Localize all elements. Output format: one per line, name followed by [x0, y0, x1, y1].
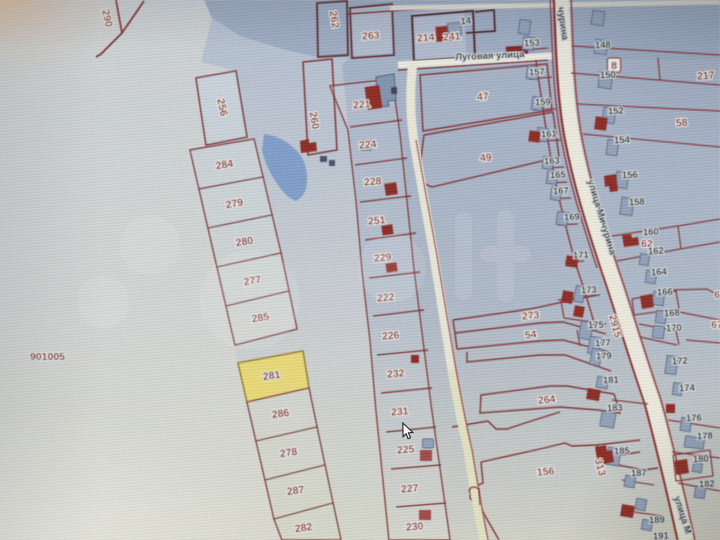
svg-text:180: 180 [693, 454, 709, 466]
svg-text:224: 224 [358, 138, 377, 151]
svg-text:162: 162 [648, 246, 664, 258]
svg-text:160: 160 [643, 227, 659, 239]
svg-text:228: 228 [363, 175, 382, 188]
svg-text:154: 154 [614, 135, 631, 147]
svg-text:281: 281 [262, 369, 281, 383]
svg-text:263: 263 [362, 29, 380, 42]
svg-text:172: 172 [672, 356, 688, 368]
svg-text:164: 164 [651, 267, 668, 279]
svg-text:163: 163 [544, 156, 560, 168]
svg-text:178: 178 [697, 431, 713, 443]
svg-text:168: 168 [664, 308, 680, 320]
svg-text:58: 58 [676, 117, 689, 130]
svg-text:153: 153 [524, 38, 540, 50]
svg-text:273: 273 [521, 309, 540, 323]
svg-text:177: 177 [595, 338, 611, 350]
svg-text:157: 157 [529, 67, 545, 79]
svg-text:182: 182 [699, 479, 715, 491]
svg-text:156: 156 [622, 170, 638, 182]
svg-text:14: 14 [460, 16, 472, 28]
svg-text:171: 171 [573, 250, 590, 262]
svg-text:185: 185 [614, 446, 631, 458]
svg-text:901005: 901005 [30, 351, 65, 363]
svg-text:173: 173 [581, 285, 597, 297]
svg-text:221: 221 [352, 98, 371, 111]
svg-text:226: 226 [381, 329, 400, 342]
svg-text:148: 148 [595, 40, 611, 52]
svg-text:174: 174 [679, 383, 696, 395]
svg-text:6: 6 [714, 289, 720, 301]
svg-text:282: 282 [294, 521, 313, 535]
svg-text:176: 176 [686, 413, 702, 425]
svg-text:181: 181 [603, 375, 620, 387]
svg-text:187: 187 [631, 468, 647, 480]
svg-text:166: 166 [657, 287, 673, 299]
svg-text:161: 161 [541, 129, 558, 141]
svg-text:47: 47 [477, 91, 490, 104]
svg-text:156: 156 [536, 465, 555, 479]
svg-text:179: 179 [596, 351, 612, 363]
svg-text:170: 170 [666, 323, 682, 335]
svg-text:158: 158 [629, 197, 645, 209]
svg-text:189: 189 [649, 515, 665, 527]
svg-text:183: 183 [607, 403, 623, 415]
svg-text:241: 241 [442, 30, 461, 43]
svg-text:169: 169 [564, 212, 580, 224]
svg-text:251: 251 [367, 214, 386, 227]
svg-text:54: 54 [524, 328, 537, 341]
svg-text:286: 286 [271, 407, 290, 421]
svg-text:227: 227 [400, 482, 419, 495]
svg-text:159: 159 [535, 97, 551, 109]
svg-text:214: 214 [416, 31, 435, 44]
svg-text:167: 167 [553, 186, 569, 198]
svg-text:232: 232 [386, 367, 405, 380]
svg-text:150: 150 [600, 70, 616, 82]
svg-text:225: 225 [396, 443, 415, 456]
svg-text:287: 287 [286, 484, 305, 498]
svg-text:49: 49 [480, 152, 493, 165]
svg-text:217: 217 [697, 69, 715, 82]
svg-text:152: 152 [608, 106, 624, 118]
svg-text:230: 230 [405, 520, 424, 533]
svg-text:231: 231 [390, 405, 409, 418]
svg-text:175: 175 [588, 320, 605, 332]
svg-text:264: 264 [537, 393, 556, 407]
svg-text:278: 278 [279, 446, 298, 460]
svg-text:191: 191 [653, 531, 670, 540]
svg-text:165: 165 [550, 170, 567, 182]
svg-text:67: 67 [711, 319, 720, 331]
